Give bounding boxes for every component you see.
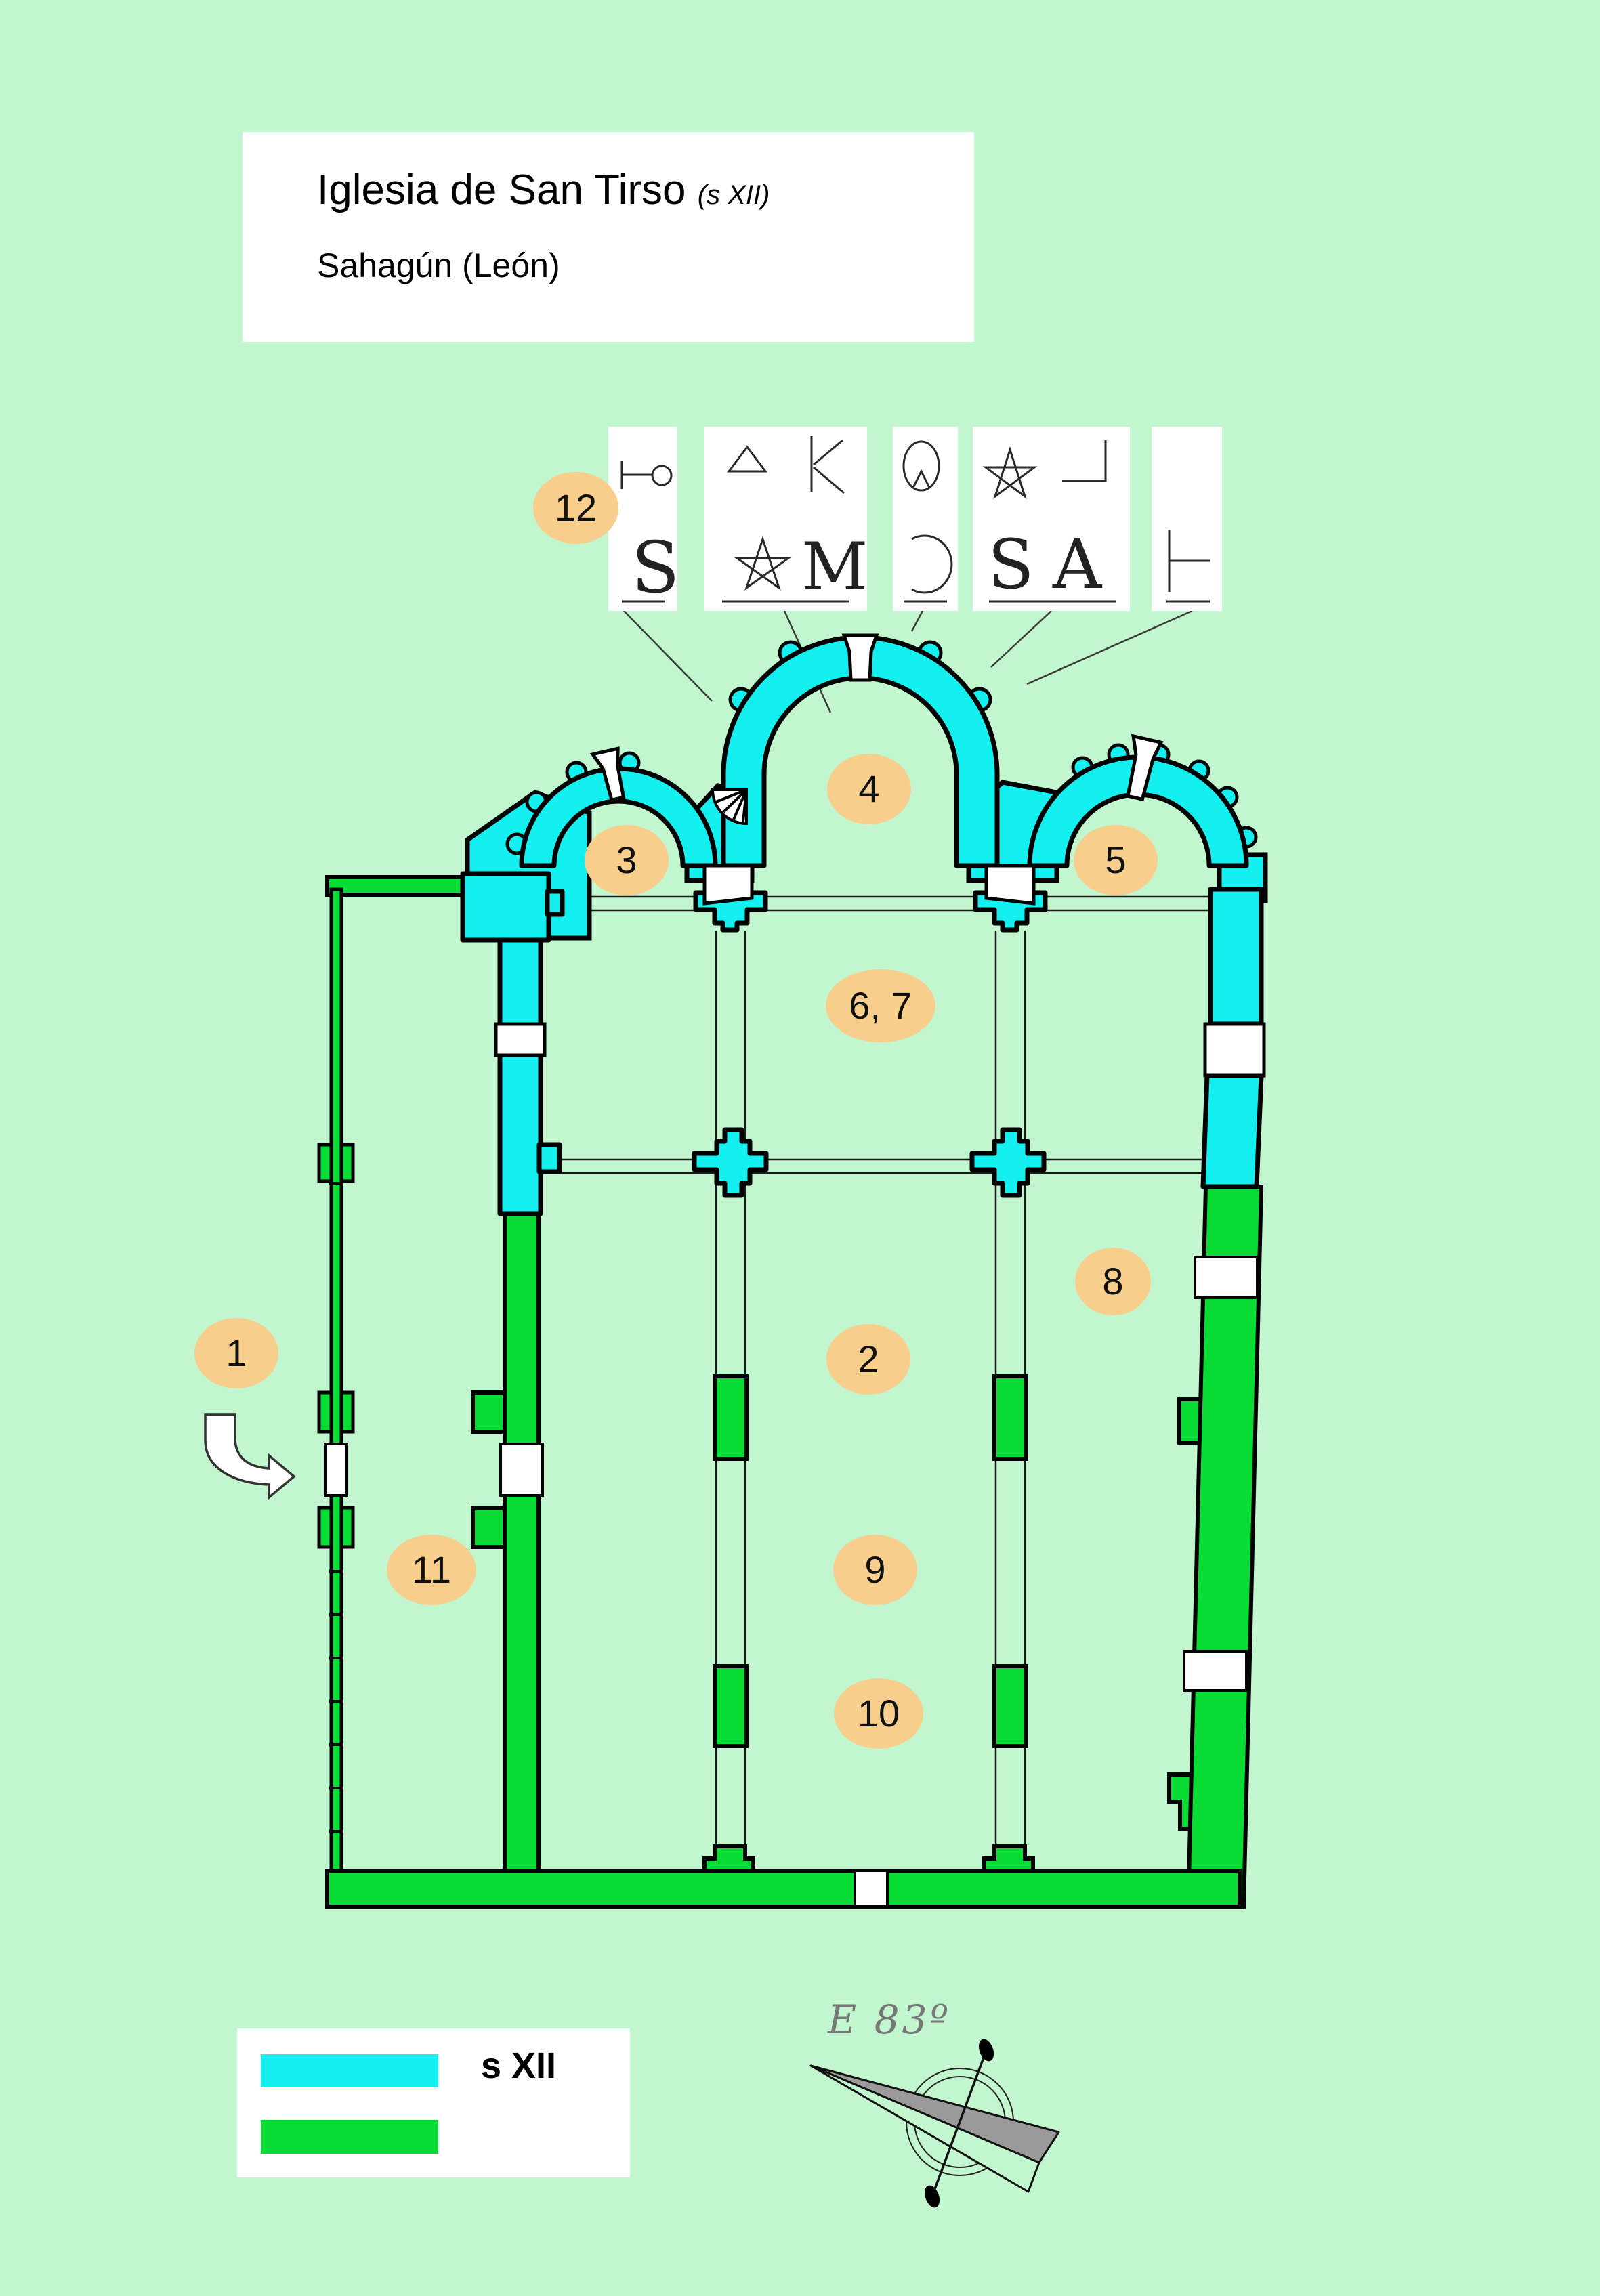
hooked-bar-mark-icon	[652, 466, 671, 485]
page: Iglesia de San Tirso (s XII) Sahagún (Le…	[0, 0, 1600, 2296]
tulip-q-mark-icon	[904, 442, 939, 490]
legend-label-s-xii: s XII	[481, 2045, 556, 2087]
mason-marks-box-5	[1152, 427, 1222, 611]
chancel-side-opening	[986, 866, 1034, 903]
west-transept-wall	[500, 940, 541, 1214]
plan-label-11: 11	[387, 1535, 476, 1605]
mason-marks-box-2: M	[704, 427, 867, 611]
title-main: Iglesia de San Tirso	[317, 167, 686, 213]
south-wall	[327, 1871, 1240, 1907]
title-box: Iglesia de San Tirso (s XII) Sahagún (Le…	[243, 132, 974, 342]
atrium-door-gap	[325, 1444, 347, 1495]
reversed-c-mark-icon	[912, 536, 952, 593]
triangle-mark-icon	[729, 447, 765, 471]
compass-bearing-label: E 83º	[828, 1997, 951, 2043]
compass-rose-icon	[811, 2037, 1059, 2210]
nave-pillar	[994, 1376, 1026, 1459]
nave-pillar	[994, 1666, 1026, 1746]
south-door-gap	[855, 1871, 887, 1907]
mason-marks-box-3	[893, 427, 958, 611]
plan-label-12: 12	[533, 472, 618, 544]
rotated-l-mark-icon	[1062, 440, 1106, 481]
atrium-north-wall	[327, 877, 465, 895]
mason-letter-a: A	[1052, 525, 1103, 604]
legend-swatch-s-xii	[261, 2054, 438, 2087]
legend-swatch-later-phase	[261, 2120, 438, 2154]
plan-label-4: 4	[827, 754, 911, 824]
northwest-corner-block	[463, 874, 549, 940]
rotated-t-mark-icon	[1169, 530, 1210, 592]
portico-door-gap	[501, 1444, 543, 1495]
pentagram-mark-icon	[986, 450, 1034, 496]
plan-label-1: 1	[194, 1318, 278, 1388]
plan-label-5: 5	[1074, 825, 1158, 895]
mason-letter-m: M	[801, 529, 867, 605]
nave-pillar	[715, 1376, 746, 1459]
page-title: Iglesia de San Tirso (s XII)	[317, 166, 770, 214]
east-wall-cyan-lower	[1203, 1076, 1261, 1187]
crossing-pier	[972, 1130, 1044, 1195]
mason-marks-box-1: S	[608, 427, 677, 611]
central-apse-window	[844, 635, 877, 680]
east-wall-cyan-upper	[1210, 889, 1261, 1024]
nave-west-wall-green	[505, 1212, 539, 1873]
chancel-side-opening	[704, 866, 752, 903]
title-period: (s XII)	[698, 180, 770, 210]
plan-label-10: 10	[834, 1678, 923, 1749]
atrium-west-wall	[319, 889, 353, 1873]
pentagram-mark-icon	[737, 539, 788, 588]
crossing-pier	[694, 1130, 766, 1195]
k-mark-icon	[812, 436, 844, 493]
legend: s XII	[237, 2028, 630, 2177]
mason-letter-s: S	[631, 526, 677, 609]
plan-label-3: 3	[585, 825, 669, 895]
green-phase-walls	[319, 877, 1261, 1907]
plan-label-9: 9	[833, 1535, 917, 1605]
mason-marks-box-4: S A	[973, 427, 1130, 611]
plan-label-6-7: 6, 7	[826, 969, 935, 1042]
mason-letter-s: S	[988, 525, 1034, 604]
plan-label-2: 2	[826, 1324, 910, 1395]
nave-pillar	[715, 1666, 746, 1746]
title-location: Sahagún (León)	[317, 246, 560, 285]
tulip-q-mark-icon	[913, 471, 929, 488]
entrance-arrow-icon	[205, 1415, 294, 1497]
floor-plan-drawing	[0, 0, 1600, 2296]
plan-label-8: 8	[1075, 1248, 1151, 1315]
